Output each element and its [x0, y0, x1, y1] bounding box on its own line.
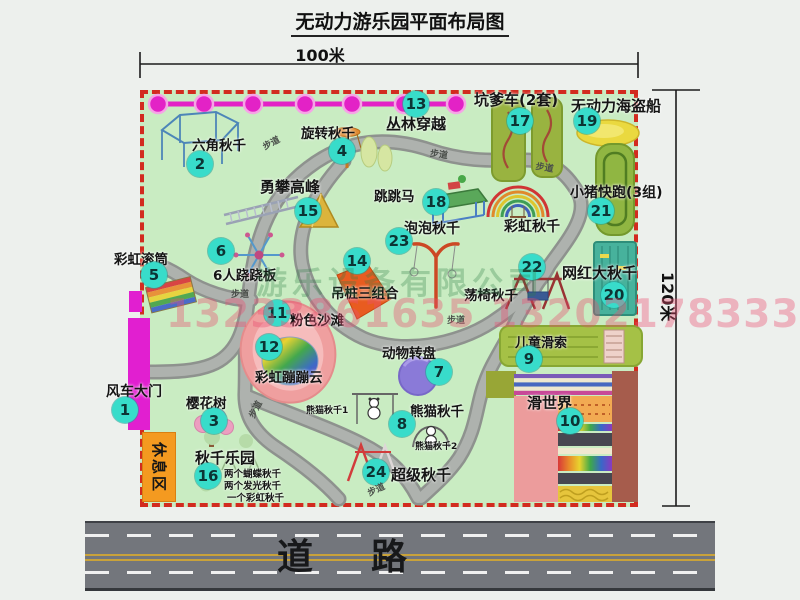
marker-badge-4: 4 — [329, 138, 355, 164]
label-24: 超级秋千 — [391, 464, 451, 485]
path-label: 步道 — [245, 398, 265, 420]
label-1: 风车大门 — [106, 381, 162, 401]
label-panda-swing-1: 熊猫秋千1 — [306, 403, 348, 416]
marker-badge-1: 1 — [112, 397, 138, 423]
label-23: 泡泡秋千 — [404, 218, 460, 238]
rest-area-box: 休息区 — [142, 432, 176, 502]
marker-badge-10: 10 — [557, 408, 583, 434]
marker-badge-5: 5 — [141, 262, 167, 288]
marker-badge-16: 16 — [195, 463, 221, 489]
marker-badge-8: 8 — [389, 411, 415, 437]
marker-badge-13: 13 — [403, 91, 429, 117]
label-18: 跳跳马 — [374, 185, 415, 205]
path-label: 步道 — [260, 133, 282, 153]
path-label: 步道 — [429, 146, 449, 161]
park-layout-screenshot: 无动力游乐园平面布局图 — [0, 0, 800, 600]
marker-badge-19: 19 — [574, 108, 600, 134]
label-12: 彩虹蹦蹦云 — [255, 366, 323, 386]
marker-badge-12: 12 — [256, 334, 282, 360]
label-swing-park-note-3: 一个彩虹秋千 — [227, 490, 284, 504]
label-17: 坑爹车(2套) — [474, 89, 558, 110]
label-8: 熊猫秋千 — [410, 400, 464, 420]
marker-badge-23: 23 — [386, 228, 412, 254]
label-15: 勇攀高峰 — [260, 176, 320, 197]
road-label: 道路 — [277, 527, 465, 579]
label-panda-swing-2: 熊猫秋千2 — [415, 439, 457, 452]
road: 道路 — [85, 521, 715, 591]
watermark-phone: 13233861635 13202178333 — [166, 292, 800, 337]
rest-area-label: 休息区 — [149, 441, 170, 492]
marker-badge-21: 21 — [588, 198, 614, 224]
marker-badge-3: 3 — [201, 408, 227, 434]
width-dimension-label: 100米 — [0, 42, 640, 66]
label-21: 小猪快跑(3组) — [570, 182, 663, 202]
label-20: 网红大秋千 — [562, 262, 637, 283]
marker-badge-15: 15 — [295, 198, 321, 224]
marker-badge-9: 9 — [516, 346, 542, 372]
marker-badge-7: 7 — [426, 359, 452, 385]
label-7: 动物转盘 — [382, 342, 436, 362]
marker-badge-2: 2 — [187, 151, 213, 177]
marker-badge-17: 17 — [507, 108, 533, 134]
label-rainbow-swing: 彩虹秋千 — [504, 216, 560, 236]
path-label: 步道 — [535, 159, 555, 175]
marker-badge-6: 6 — [208, 238, 234, 264]
marker-badge-18: 18 — [423, 189, 449, 215]
